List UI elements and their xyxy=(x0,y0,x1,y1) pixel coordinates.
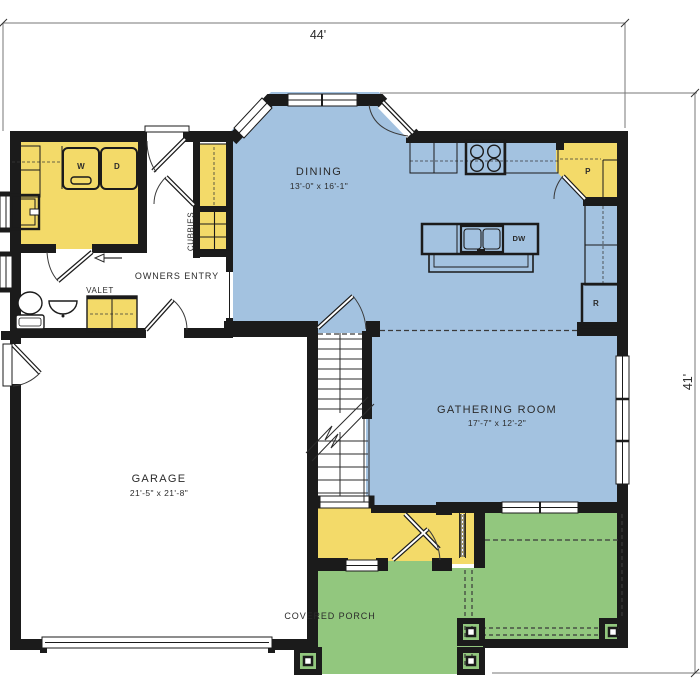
garage-size: 21'-5" x 21'-8" xyxy=(99,488,219,498)
dining-kitchen-floor xyxy=(231,92,620,333)
gathering-bottom-window xyxy=(502,502,578,513)
porch-door-sill xyxy=(387,561,433,571)
owners-entry-label: OWNERS ENTRY xyxy=(127,271,227,281)
floor-plan-drawing xyxy=(0,0,700,700)
laundry-floor xyxy=(14,137,140,249)
gathering-room-label: GATHERING ROOM xyxy=(417,404,577,416)
dining-cased-opening xyxy=(226,268,233,322)
width-dimension-label: 44' xyxy=(288,28,348,42)
entry-direction-arrow xyxy=(95,254,122,262)
valet-label: VALET xyxy=(75,286,125,295)
cubbies-upper-cabinet-fill xyxy=(199,144,230,207)
pantry-label: P xyxy=(580,167,596,176)
gathering-right-window xyxy=(616,356,629,484)
height-dimension-label: 41' xyxy=(681,362,695,402)
gathering-room-size: 17'-7" x 12'-2" xyxy=(417,418,577,428)
washer-label: W xyxy=(71,162,91,171)
floor-plan: 44' 41' DINING 13'-0" x 16'-1" GATHERING… xyxy=(0,0,700,700)
dishwasher-label: DW xyxy=(507,234,531,243)
cubbies-label: CUBBIES xyxy=(187,207,196,257)
garage-side-door-frame xyxy=(3,344,12,386)
powder-sink xyxy=(49,301,77,318)
bay-top-window xyxy=(288,94,357,106)
foyer-window xyxy=(346,560,378,571)
garage-door xyxy=(42,637,272,648)
garage-label: GARAGE xyxy=(99,473,219,485)
side-entry-header xyxy=(145,126,189,132)
dining-size: 13'-0" x 16'-1" xyxy=(259,181,379,191)
powder-room-fixtures xyxy=(16,292,77,329)
powder-window xyxy=(0,252,12,292)
stairwell-window xyxy=(315,496,374,508)
refrigerator-label: R xyxy=(588,299,604,308)
covered-porch-label: COVERED PORCH xyxy=(270,611,390,621)
dining-label: DINING xyxy=(259,166,379,178)
dryer-label: D xyxy=(107,162,127,171)
